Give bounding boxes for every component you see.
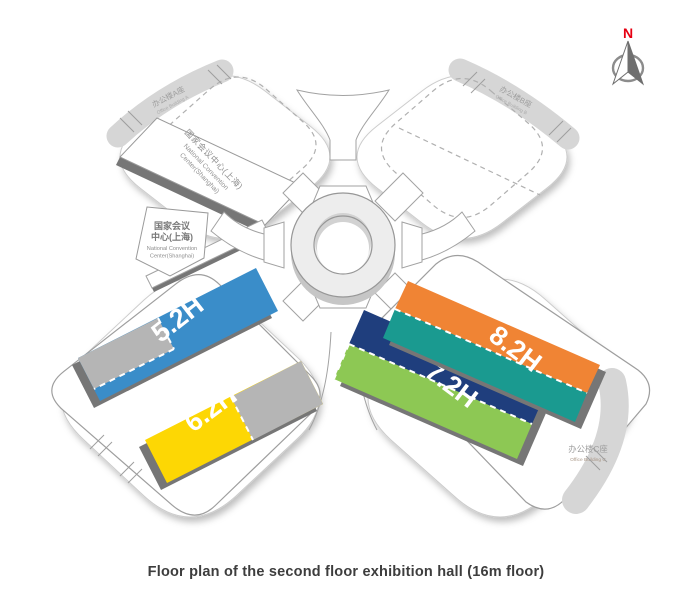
landmark-label-cn1: 国家会议 — [154, 220, 191, 231]
south-west-wing-interior: 5.2H 6.2H — [52, 268, 323, 515]
floor-plan-figure: 办公楼A座 Office Building A 办公楼B座 Office Bui… — [0, 0, 693, 607]
landmark-label-cn2: 中心(上海) — [151, 231, 193, 242]
landmark-label-en2: Center(Shanghai) — [150, 254, 194, 260]
figure-caption: Floor plan of the second floor exhibitio… — [148, 564, 545, 580]
office-building-c-label-cn: 办公楼C座 — [568, 444, 608, 454]
north-compass: N — [613, 25, 643, 84]
ring-east-landing — [402, 222, 422, 268]
north-arrow-icon — [613, 41, 643, 84]
landmark-label-en1: National Convention — [147, 246, 197, 252]
central-plaza-ring — [291, 193, 395, 305]
north-label: N — [623, 25, 633, 41]
ring-west-landing — [264, 222, 284, 268]
ring-courtyard — [317, 222, 369, 274]
